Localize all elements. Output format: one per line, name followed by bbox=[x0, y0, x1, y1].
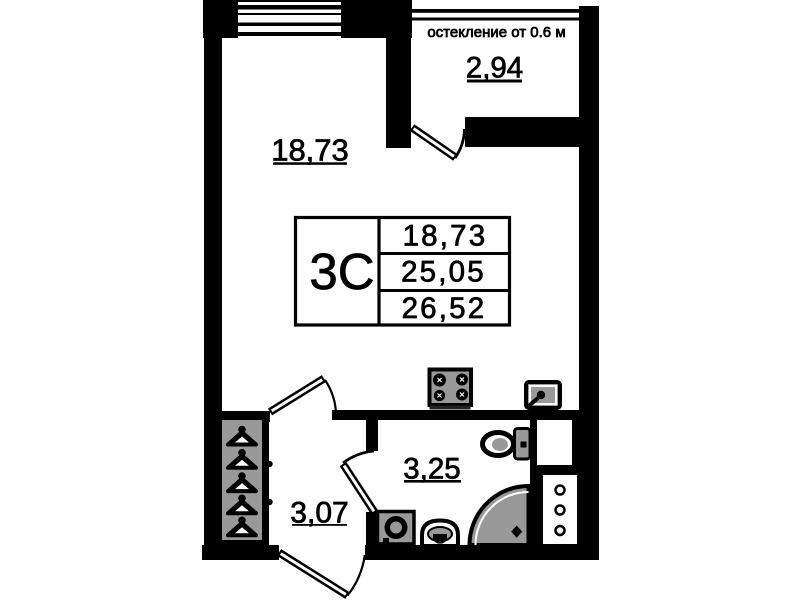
svg-text:18,73: 18,73 bbox=[271, 133, 349, 168]
svg-text:18,73: 18,73 bbox=[403, 220, 488, 253]
svg-text:остекление от 0.6 м: остекление от 0.6 м bbox=[427, 24, 565, 41]
svg-text:3С: 3С bbox=[309, 243, 374, 300]
svg-text:26,52: 26,52 bbox=[402, 292, 487, 325]
svg-text:25,05: 25,05 bbox=[401, 256, 486, 289]
